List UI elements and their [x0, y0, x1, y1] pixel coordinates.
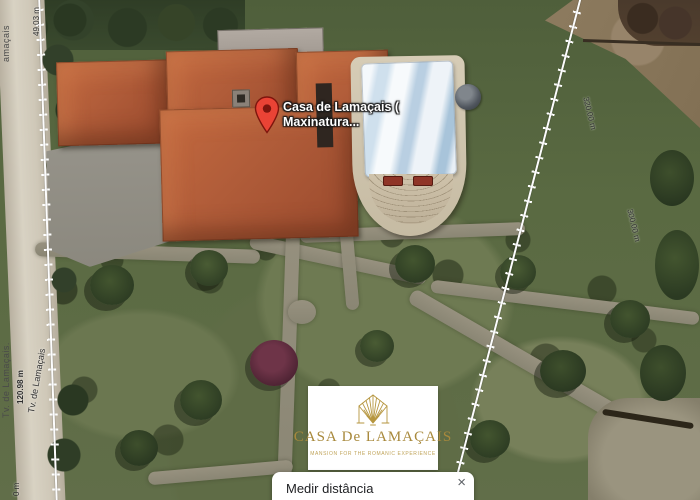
tree — [190, 250, 228, 286]
tree — [180, 380, 222, 420]
tree — [360, 330, 394, 362]
path-junction — [288, 300, 316, 324]
map-pin-icon[interactable] — [254, 96, 280, 134]
tree — [640, 345, 686, 401]
tree — [120, 430, 158, 466]
round-garden-feature — [455, 84, 481, 110]
measure-value: 49.03 m — [32, 7, 41, 36]
measure-distance-popup: × Medir distância Clique no mapa e adici… — [272, 472, 474, 500]
tree — [90, 265, 134, 305]
tree — [610, 300, 650, 338]
sunbed — [413, 176, 433, 186]
measure-value: 0 m — [12, 483, 21, 496]
pin-label-line1: Casa de Lamaçais ( — [283, 100, 399, 115]
tree — [395, 245, 435, 283]
street-label: amaçais — [1, 25, 11, 62]
logo-card: CASA De LAMAÇAIS MANSION FOR THE ROMANIC… — [308, 386, 438, 470]
pin-label-line2: Maxinatura... — [283, 115, 399, 130]
sunbed — [383, 176, 403, 186]
street-label: Tv. de Lamaçais. — [1, 342, 11, 418]
popup-title: Medir distância — [286, 481, 462, 496]
close-icon[interactable]: × — [457, 475, 466, 490]
mansion-building — [52, 24, 393, 248]
logo-title: CASA De LAMAÇAIS — [294, 429, 453, 446]
roof-skylight — [232, 89, 250, 107]
logo-subtitle: MANSION FOR THE ROMANIC EXPERIENCE — [310, 451, 436, 457]
maroon-tree — [250, 340, 298, 386]
house-tree-emblem-icon — [352, 392, 394, 426]
roof-left-wing — [56, 59, 170, 146]
satellite-map[interactable]: amaçais Tv. de Lamaçais. Tv. de Lamaçais… — [0, 0, 700, 500]
measure-value: 120.98 m — [16, 370, 25, 404]
tree — [540, 350, 586, 392]
tree — [470, 420, 510, 458]
tree — [655, 230, 699, 300]
pin-label: Casa de Lamaçais ( Maxinatura... — [283, 100, 399, 130]
tree — [650, 150, 694, 206]
